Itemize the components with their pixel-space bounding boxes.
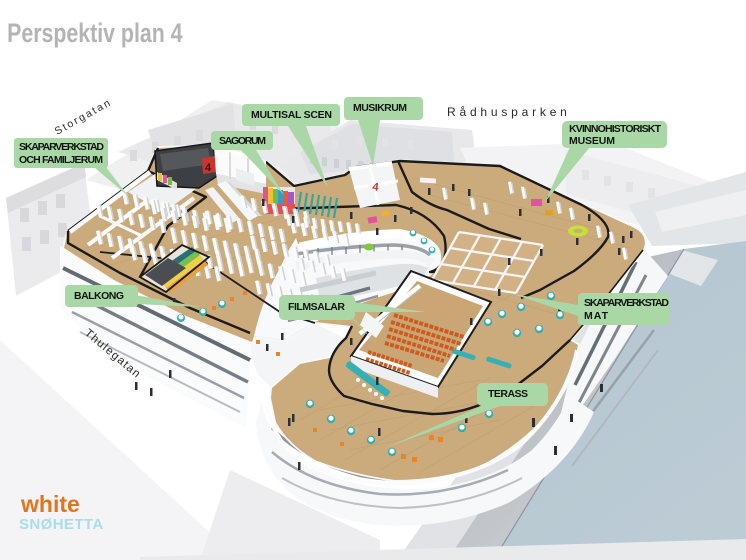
svg-text:4: 4 — [205, 162, 212, 174]
svg-text:TERASS: TERASS — [488, 388, 528, 400]
svg-text:MAT: MAT — [584, 310, 609, 322]
svg-text:Rådhusparken: Rådhusparken — [447, 105, 571, 119]
svg-text:SAGORUM: SAGORUM — [219, 135, 266, 147]
svg-text:OCH FAMILJERUM: OCH FAMILJERUM — [19, 154, 103, 166]
svg-text:MUSIKRUM: MUSIKRUM — [353, 102, 407, 114]
svg-text:MULTISAL SCEN: MULTISAL SCEN — [251, 109, 332, 121]
svg-text:FILMSALAR: FILMSALAR — [288, 301, 345, 313]
svg-text:MUSEUM: MUSEUM — [569, 135, 615, 147]
svg-text:KVINNOHISTORISKT: KVINNOHISTORISKT — [569, 123, 662, 135]
svg-text:white: white — [20, 491, 80, 517]
svg-text:SKAPARVERKSTAD: SKAPARVERKSTAD — [584, 297, 669, 309]
svg-text:BALKONG: BALKONG — [74, 290, 124, 302]
svg-text:SKAPARVERKSTAD: SKAPARVERKSTAD — [19, 141, 104, 153]
svg-text:SNØHETTA: SNØHETTA — [19, 516, 104, 533]
svg-text:Perspektiv plan 4: Perspektiv plan 4 — [7, 19, 183, 49]
